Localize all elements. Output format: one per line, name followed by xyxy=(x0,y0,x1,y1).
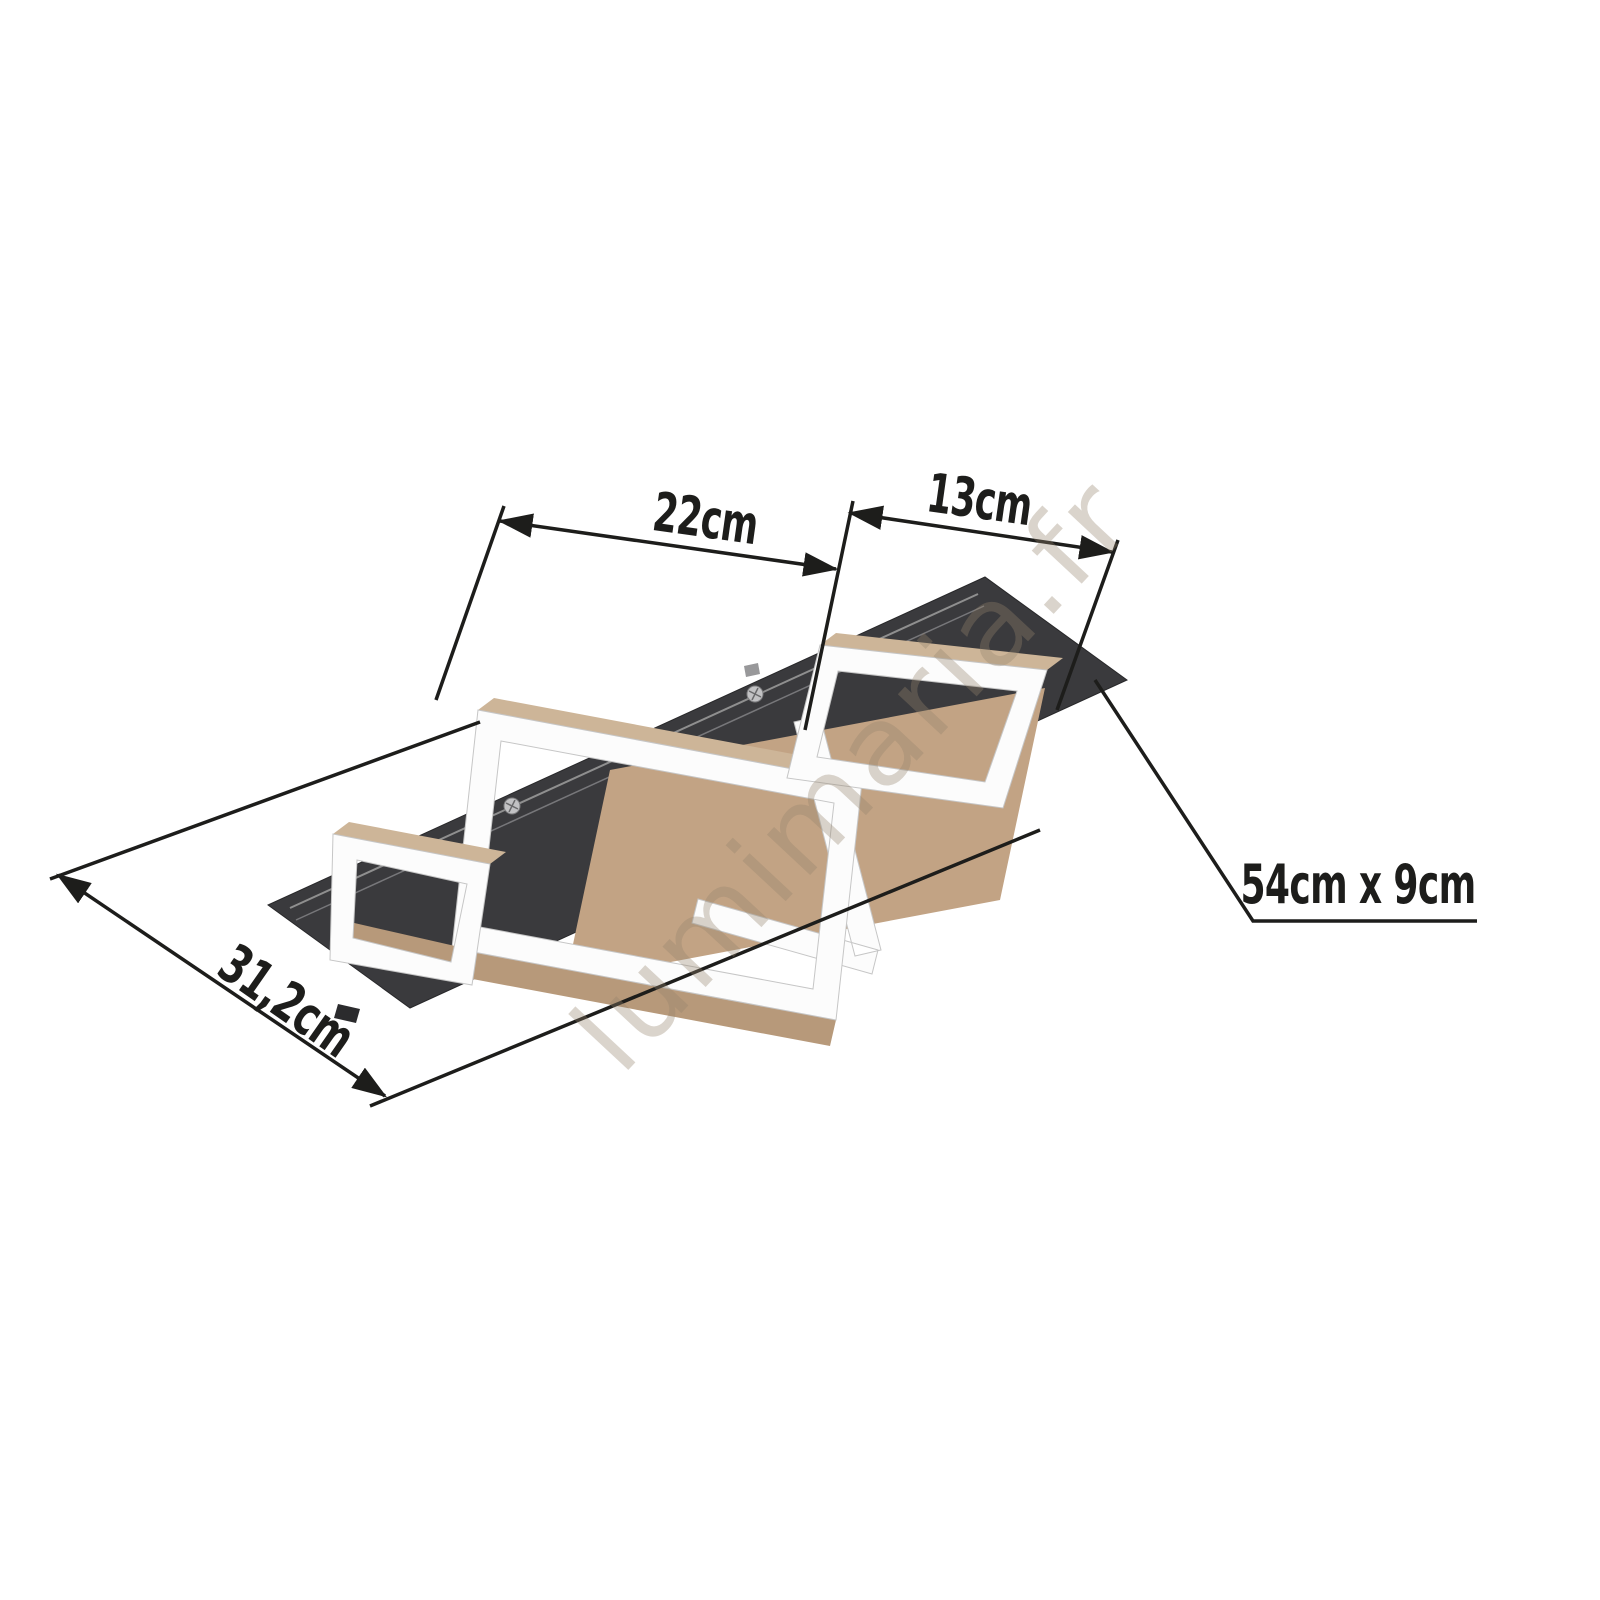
screw xyxy=(504,798,520,814)
product-dimension-diagram: 22cm 13cm 31,2cm 54cm x 9cm lumimaria.fr xyxy=(0,0,1600,1600)
screw xyxy=(747,686,763,702)
extension-line-left xyxy=(436,506,504,700)
mounting-clip xyxy=(744,663,760,677)
dimension-label-54x9: 54cm x 9cm xyxy=(1241,853,1476,916)
